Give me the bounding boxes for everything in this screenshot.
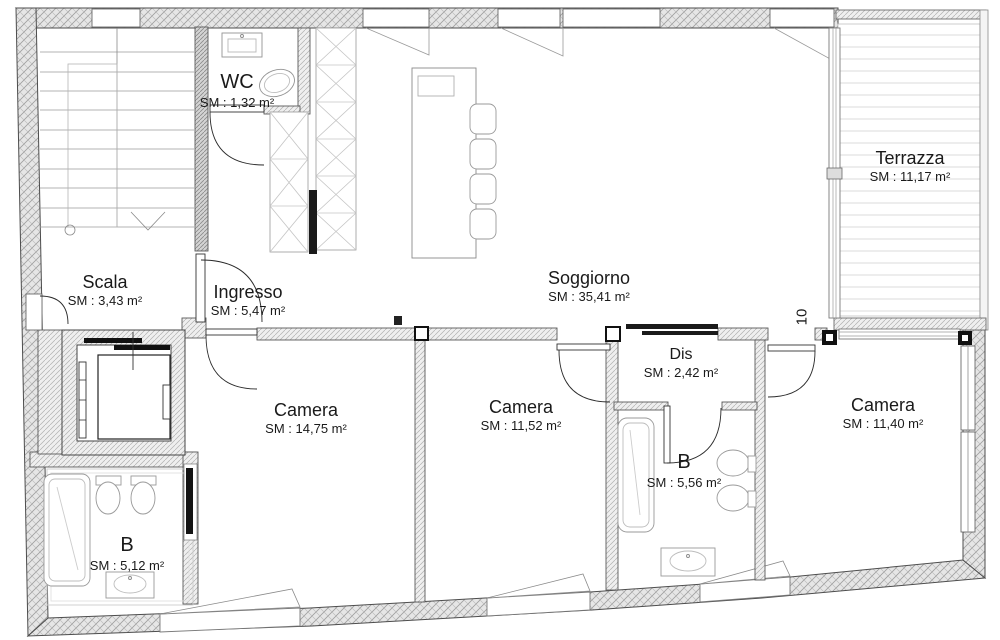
wall-dis-bagno1: [722, 402, 757, 410]
kitchen-island: [412, 68, 496, 258]
room-label-scala: Scala SM : 3,43 m²: [68, 272, 142, 309]
room-label-camera-3: Camera SM : 11,40 m²: [843, 395, 924, 432]
wall-bagno1-camera3: [755, 340, 765, 580]
wall-corridor: [427, 328, 557, 340]
wall-corridor: [718, 328, 768, 340]
elevator-door: [114, 345, 170, 350]
room-name: Soggiorno: [548, 268, 630, 289]
toilet-tank: [748, 491, 756, 507]
wall-camera2-dis: [606, 340, 618, 590]
room-name: WC: [200, 71, 274, 95]
bathroom-middle-fixtures: [618, 418, 756, 576]
room-area: SM : 35,41 m²: [548, 289, 630, 304]
sink-fixture: [661, 548, 715, 576]
room-name: Scala: [68, 272, 142, 293]
room-label-soggiorno: Soggiorno SM : 35,41 m²: [548, 268, 630, 305]
terrace-bottom-wall: [834, 318, 986, 330]
door-gap: [26, 294, 42, 330]
sink-fixture: [106, 572, 154, 598]
stair-start-marker: [65, 225, 75, 235]
bathtub-fixture: [44, 474, 90, 586]
room-name: Camera: [843, 395, 924, 416]
column-post: [606, 327, 620, 341]
chair: [470, 174, 496, 204]
chair: [470, 209, 496, 239]
door-arc: [210, 112, 264, 165]
window-swings: [366, 28, 832, 60]
room-label-wc: WC SM : 1,32 m²: [200, 71, 274, 110]
right-windows: [961, 346, 975, 532]
open-door-leaf: [186, 468, 193, 534]
island-sink: [418, 76, 454, 96]
door-arc: [559, 350, 610, 402]
terrace-top-wall: [836, 10, 986, 19]
elevator-car: [98, 355, 170, 439]
door-leaf: [557, 344, 610, 350]
room-label-camera-1: Camera SM : 14,75 m²: [265, 400, 347, 437]
room-area: SM : 5,12 m²: [90, 558, 164, 573]
toilet-fixture: [717, 450, 749, 476]
door-arc: [40, 296, 68, 324]
elevator: [62, 330, 185, 455]
chair: [470, 139, 496, 169]
bidet-fixture: [717, 485, 749, 511]
room-label-terrazza: Terrazza SM : 11,17 m²: [870, 148, 951, 185]
toilet-tank: [748, 456, 756, 472]
door-leaf: [768, 345, 815, 351]
sliding-door-dis: [626, 324, 718, 335]
under-terrace-window-band: [839, 329, 960, 339]
room-name: Ingresso: [211, 282, 285, 303]
wall-dis-bagno1: [614, 402, 668, 410]
stairs: [40, 28, 194, 235]
wall-scala-wc: [195, 27, 208, 251]
room-area: SM : 1,32 m²: [200, 95, 274, 110]
terrace-door-opening: [770, 9, 834, 27]
wall-left-of-elevator: [38, 330, 64, 454]
wall-wc-right: [298, 28, 310, 114]
room-area: SM : 11,52 m²: [481, 418, 562, 433]
door-arc: [206, 335, 257, 389]
door-leaf: [206, 329, 257, 335]
room-name: Camera: [265, 400, 347, 421]
bidet-fixture: [131, 482, 155, 514]
room-area: SM : 5,47 m²: [211, 303, 285, 318]
terrace-right-wall: [980, 10, 988, 330]
door-stop: [394, 316, 402, 325]
room-label-dis: Dis SM : 2,42 m²: [644, 346, 718, 380]
open-door-leaf: [309, 190, 317, 254]
room-area: SM : 2,42 m²: [644, 365, 718, 380]
room-name: Camera: [481, 397, 562, 418]
room-name: Dis: [644, 346, 718, 365]
window: [563, 9, 660, 27]
window: [363, 9, 429, 27]
room-area: SM : 5,56 m²: [647, 475, 721, 490]
wall-corridor: [257, 328, 415, 340]
room-label-bagno-1: B SM : 5,56 m²: [647, 451, 721, 490]
room-area: SM : 3,43 m²: [68, 293, 142, 308]
room-label-camera-2: Camera SM : 11,52 m²: [481, 397, 562, 434]
room-name: Terrazza: [870, 148, 951, 169]
window: [498, 9, 560, 27]
room-name: B: [90, 534, 164, 558]
elevator-rail: [163, 385, 170, 419]
floor-plan: WC SM : 1,32 m² Terrazza SM : 11,17 m² S…: [0, 0, 1000, 640]
wall-camera1-camera2: [415, 340, 425, 602]
door-leaf: [196, 254, 205, 322]
column-post: [415, 327, 428, 340]
room-area: SM : 14,75 m²: [265, 421, 347, 436]
toilet-fixture: [96, 482, 120, 514]
door-arc: [768, 351, 815, 397]
dimension-label: 10: [794, 309, 811, 326]
room-label-ingresso: Ingresso SM : 5,47 m²: [211, 282, 285, 319]
room-area: SM : 11,17 m²: [870, 169, 951, 184]
chair: [470, 104, 496, 134]
room-name: B: [647, 451, 721, 475]
room-label-bagno-2: B SM : 5,12 m²: [90, 534, 164, 573]
terrace-glazing: [827, 28, 842, 318]
window: [92, 9, 140, 27]
room-area: SM : 11,40 m²: [843, 416, 924, 431]
